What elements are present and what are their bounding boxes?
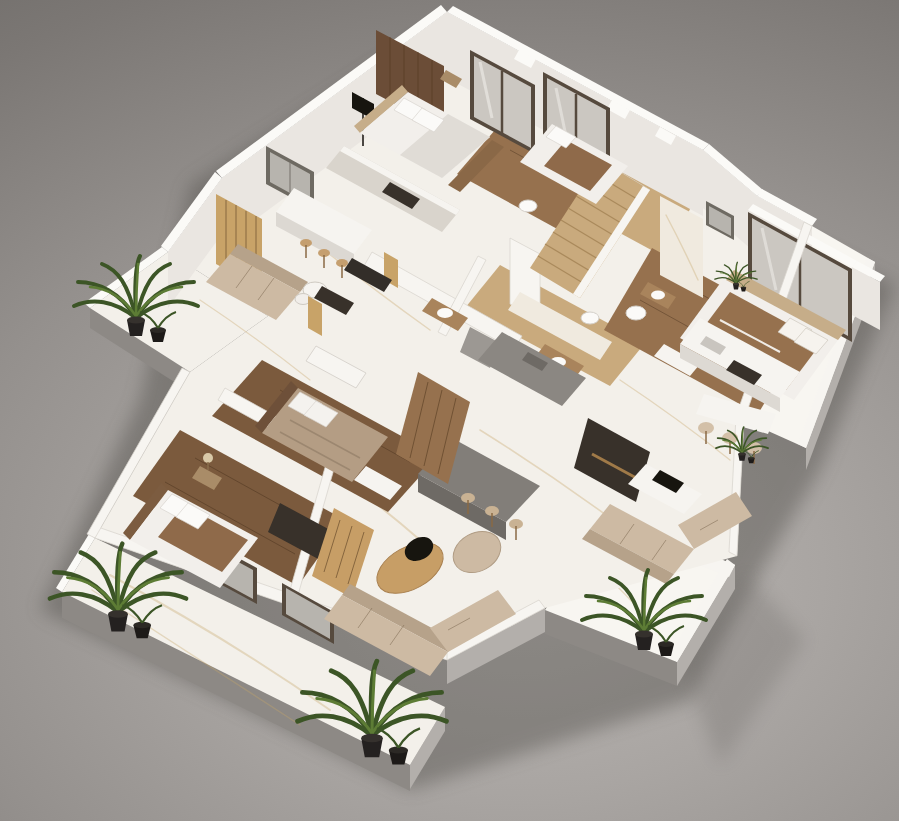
- toilet-upper: [519, 200, 537, 212]
- vanity-basin: [651, 291, 665, 300]
- floor-plan-svg: [0, 0, 899, 821]
- toilet-ensuite: [626, 306, 646, 320]
- render-canvas: [0, 0, 899, 821]
- toilet-central: [581, 312, 599, 324]
- vanity-basin-west: [437, 308, 453, 318]
